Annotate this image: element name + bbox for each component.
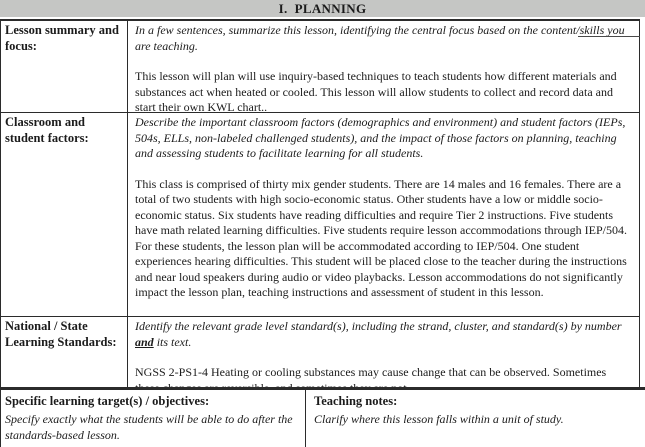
learning-standards-instruction-text: Identify the relevant grade level standa… <box>135 319 633 350</box>
row-content-classroom-factors: Describe the important classroom factors… <box>128 113 639 316</box>
row-label-classroom-factors: Classroom and student factors: <box>1 113 128 316</box>
specific-learning-targets-instruction-text: Specify exactly what the students will b… <box>5 412 297 443</box>
lesson-plan-document: I. PLANNING Lesson summary and focus: In… <box>0 0 645 447</box>
teaching-notes-instruction-text: Clarify where this lesson falls within a… <box>314 412 637 428</box>
instruction-text-emphasized-and: and <box>135 335 154 349</box>
specific-learning-targets-heading: Specific learning target(s) / objectives… <box>5 393 297 409</box>
specific-learning-targets-cell: Specific learning target(s) / objectives… <box>1 390 306 447</box>
lesson-summary-answer-text: This lesson will plan will use inquiry-b… <box>135 69 633 112</box>
lesson-summary-instruction-text: In a few sentences, summarize this lesso… <box>135 23 633 54</box>
instruction-text-part-after: its text. <box>154 335 192 349</box>
table-row-classroom-factors: Classroom and student factors: Describe … <box>1 113 639 317</box>
learning-standards-answer-text: NGSS 2-PS1-4 Heating or cooling substanc… <box>135 365 633 387</box>
section-title-planning: I. PLANNING <box>0 0 645 17</box>
row-content-lesson-summary: In a few sentences, summarize this lesso… <box>128 21 639 112</box>
table-row-learning-standards: National / State Learning Standards: Ide… <box>1 317 639 387</box>
classroom-factors-answer-text: This class is comprised of thirty mix ge… <box>135 177 633 301</box>
row-content-learning-standards: Identify the relevant grade level standa… <box>128 317 639 387</box>
classroom-factors-instruction-text: Describe the important classroom factors… <box>135 115 633 162</box>
teaching-notes-cell: Teaching notes: Clarify where this lesso… <box>306 390 645 447</box>
planning-table: Lesson summary and focus: In a few sente… <box>0 19 640 387</box>
teaching-notes-heading: Teaching notes: <box>314 393 637 409</box>
row-label-lesson-summary: Lesson summary and focus: <box>1 21 128 112</box>
scan-artifact-line <box>578 36 640 37</box>
instruction-text-part-before: Identify the relevant grade level standa… <box>135 319 622 333</box>
row-label-learning-standards: National / State Learning Standards: <box>1 317 128 387</box>
objectives-notes-section: Specific learning target(s) / objectives… <box>0 387 645 447</box>
table-row-lesson-summary: Lesson summary and focus: In a few sente… <box>1 21 639 113</box>
